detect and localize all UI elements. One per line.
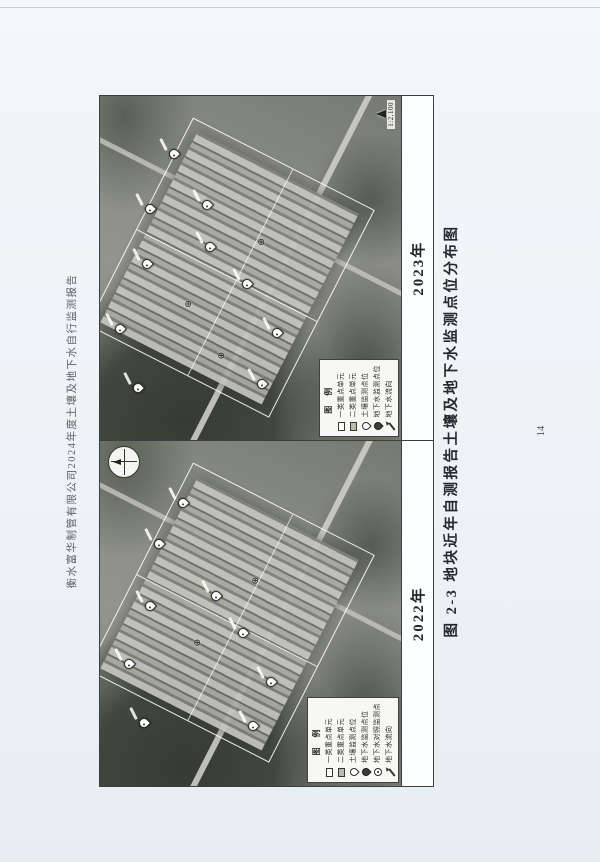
- legend-item-label: 二类重点单元: [348, 373, 358, 418]
- monitoring-point-pin-icon: [131, 381, 145, 395]
- legend-item: 土壤监测点位: [360, 365, 370, 433]
- legend-rows: 一类重点单元二类重点单元土壤监测点位地下水监测点位地下水流向: [336, 365, 394, 433]
- year-label-2022: 2022年: [407, 586, 428, 641]
- monitoring-point-pin-icon: [264, 675, 278, 689]
- panel-2022: ⊕⊕ 图 例 一类重点单元二类重点单元土壤监测点位地下水监测点位地下水对照监测点…: [100, 441, 433, 787]
- pin-label-tag: [144, 528, 153, 541]
- crosshair-marker-icon: ⊕: [194, 639, 203, 647]
- monitoring-point-pin-icon: [152, 537, 166, 551]
- legend-item: 二类重点单元: [348, 365, 358, 433]
- legend-item: 地下水监测点位: [372, 365, 382, 433]
- pin-label-tag: [123, 372, 132, 385]
- map-legend-2022: 图 例 一类重点单元二类重点单元土壤监测点位地下水监测点位地下水对照监测点地下水…: [307, 697, 399, 783]
- legend-item-label: 地下水监测点位: [360, 711, 370, 764]
- legend-item: 土壤监测点位: [348, 703, 358, 778]
- satellite-image-2023: ⊕⊕⊕ 1:2,100 图 例 一类重点单元二类重点单元土壤监测点位地下水监测点…: [100, 96, 401, 441]
- crosshair-marker-icon: ⊕: [252, 577, 261, 585]
- crosshair-marker-icon: ⊕: [185, 300, 194, 308]
- legend-title: 图 例: [311, 703, 322, 778]
- map-scale: 1:2,100: [376, 100, 395, 129]
- monitoring-point-pin-icon: [236, 626, 250, 640]
- legend-item-label: 地下水流向: [384, 380, 394, 418]
- scanned-report-page: 衡水富华制管有限公司2024年度土壤及地下水自行监测报告 ⊕⊕ 图 例 一类重点…: [0, 0, 600, 862]
- pin-label-tag: [202, 580, 211, 593]
- pin-light-icon: [349, 767, 358, 778]
- monitoring-point-pin-icon: [254, 377, 268, 391]
- legend-item: 地下水流向: [384, 365, 394, 433]
- pin-label-tag: [135, 193, 144, 206]
- monitoring-point-pin-icon: [137, 716, 151, 730]
- pin-label-tag: [256, 666, 265, 679]
- rotated-landscape-content: 衡水富华制管有限公司2024年度土壤及地下水自行监测报告 ⊕⊕ 图 例 一类重点…: [0, 0, 600, 862]
- legend-item: 二类重点单元: [336, 703, 346, 778]
- pin-label-tag: [247, 368, 256, 381]
- monitoring-point-pin-icon: [143, 599, 157, 613]
- monitoring-point-pin-icon: [239, 277, 253, 291]
- legend-item-label: 地下水监测点位: [372, 365, 382, 418]
- monitoring-point-pin-icon: [167, 147, 181, 161]
- monitoring-point-pin-icon: [245, 719, 259, 733]
- crosshair-marker-icon: ⊕: [258, 238, 267, 246]
- year-row-2022: 2022年: [401, 442, 433, 787]
- legend-rows: 一类重点单元二类重点单元土壤监测点位地下水监测点位地下水对照监测点地下水流向: [324, 703, 394, 778]
- arrow-icon: [385, 767, 394, 778]
- monitoring-point-pin-icon: [176, 495, 190, 509]
- monitoring-point-pin-icon: [203, 240, 217, 254]
- figure-caption: 图 2-3 地块近年自测报告土壤及地下水监测点位分布图: [440, 0, 461, 862]
- north-needle-icon: [113, 460, 121, 466]
- pin-label-tag: [193, 189, 202, 202]
- satellite-image-2022: ⊕⊕ 图 例 一类重点单元二类重点单元土壤监测点位地下水监测点位地下水对照监测点…: [100, 442, 401, 787]
- panel-2023: ⊕⊕⊕ 1:2,100 图 例 一类重点单元二类重点单元土壤监测点位地下水监测点…: [100, 96, 433, 441]
- year-label-2023: 2023年: [407, 241, 428, 296]
- legend-item-label: 二类重点单元: [336, 718, 346, 763]
- legend-item-label: 土壤监测点位: [348, 718, 358, 763]
- pin-dot-icon: [373, 767, 382, 778]
- pin-dark-icon: [373, 422, 382, 433]
- pin-dark-icon: [361, 767, 370, 778]
- pin-label-tag: [232, 269, 241, 282]
- legend-item: 一类重点单元: [324, 703, 334, 778]
- monitoring-point-pin-icon: [113, 322, 127, 336]
- pin-label-tag: [105, 313, 114, 326]
- legend-item: 一类重点单元: [336, 365, 346, 433]
- pin-label-tag: [132, 248, 141, 261]
- monitoring-point-pin-icon: [143, 202, 157, 216]
- pin-label-tag: [114, 648, 123, 661]
- pin-label-tag: [135, 590, 144, 603]
- legend-item-label: 一类重点单元: [336, 373, 346, 418]
- pin-label-tag: [129, 707, 138, 720]
- pin-label-tag: [229, 617, 238, 630]
- pin-label-tag: [168, 487, 177, 500]
- running-header: 衡水富华制管有限公司2024年度土壤及地下水自行监测报告: [64, 0, 79, 862]
- north-arrow-icon: [376, 110, 386, 118]
- monitoring-point-pin-icon: [270, 326, 284, 340]
- legend-item-label: 土壤监测点位: [360, 373, 370, 418]
- legend-item-label: 一类重点单元: [324, 718, 334, 763]
- legend-item: 地下水流向: [384, 703, 394, 778]
- monitoring-point-pin-icon: [122, 657, 136, 671]
- scale-text: 1:2,100: [387, 100, 395, 129]
- year-row-2023: 2023年: [401, 96, 433, 441]
- monitoring-point-pin-icon: [209, 588, 223, 602]
- map-legend-2023: 图 例 一类重点单元二类重点单元土壤监测点位地下水监测点位地下水流向: [319, 359, 399, 438]
- legend-item: 地下水监测点位: [360, 703, 370, 778]
- monitoring-point-pin-icon: [200, 198, 214, 212]
- figure-table: ⊕⊕ 图 例 一类重点单元二类重点单元土壤监测点位地下水监测点位地下水对照监测点…: [99, 95, 434, 787]
- pin-label-tag: [238, 710, 247, 723]
- rect-fill-icon: [337, 767, 346, 778]
- crosshair-marker-icon: ⊕: [218, 352, 227, 360]
- legend-item: 地下水对照监测点: [372, 703, 382, 778]
- arrow-icon: [385, 422, 394, 433]
- legend-item-label: 地下水对照监测点: [372, 703, 382, 763]
- pin-light-icon: [361, 422, 370, 433]
- rect-outline-icon: [337, 422, 346, 433]
- pin-label-tag: [159, 138, 168, 151]
- pin-label-tag: [196, 231, 205, 244]
- page-number: 14: [536, 0, 547, 862]
- pin-label-tag: [262, 317, 271, 330]
- monitoring-point-pin-icon: [140, 257, 154, 271]
- rect-outline-icon: [325, 767, 334, 778]
- rect-fill-icon: [349, 422, 358, 433]
- legend-item-label: 地下水流向: [384, 726, 394, 764]
- legend-title: 图 例: [323, 365, 334, 433]
